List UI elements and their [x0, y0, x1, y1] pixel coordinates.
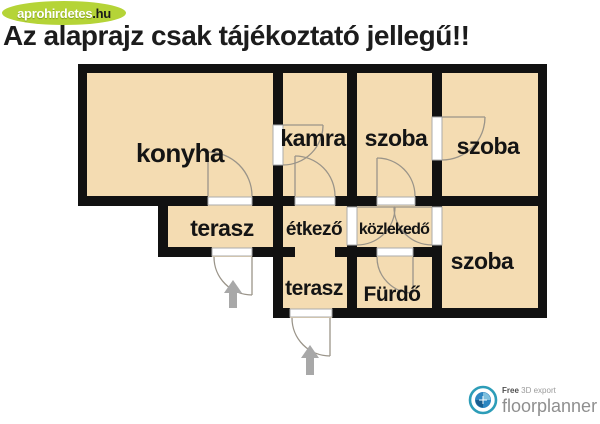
floorplanner-logo-text: Free 3D export floorplanner	[502, 383, 597, 417]
floorplanner-export-label: 3D export	[521, 386, 556, 395]
door-furdo	[377, 248, 413, 256]
entry-arrow-icon-1	[224, 280, 242, 308]
wall-left-outer	[78, 64, 87, 206]
page-title: Az alaprajz csak tájékoztató jellegű!!	[3, 20, 600, 52]
page: aprohirdetes.hu Az alaprajz csak tájékoz…	[0, 0, 600, 424]
room-label-konyha: konyha	[115, 140, 245, 166]
watermark-badge: aprohirdetes.hu	[2, 1, 126, 25]
wall-v5-a	[432, 64, 442, 117]
room-label-furdo: Fürdő	[327, 284, 457, 305]
door-terasz-exit	[212, 248, 252, 256]
door-szoba-middle	[377, 197, 415, 205]
floor-plan	[0, 0, 600, 424]
room-label-szoba-bottom: szoba	[417, 250, 547, 273]
room-label-szoba-top-right: szoba	[423, 135, 553, 158]
door-konyha-terasz	[208, 197, 252, 205]
wall-right-outer	[538, 64, 547, 318]
floorplanner-tagline: Free 3D export	[502, 386, 597, 395]
watermark-tld: .hu	[92, 6, 111, 21]
floorplanner-logo-icon	[468, 385, 498, 415]
watermark-brand: aprohirdetes	[17, 6, 92, 21]
room-label-kozlekedo: közlekedő	[329, 222, 459, 238]
wall-mid-1	[78, 196, 208, 206]
wall-top	[78, 64, 547, 73]
wall-v5-b	[432, 160, 442, 207]
wall-v3-a	[273, 64, 283, 125]
floorplanner-brand: floorplanner	[502, 396, 597, 417]
entry-arrow-icon-2	[301, 345, 319, 375]
door-terasz2-exit	[290, 309, 332, 317]
floorplanner-free-label: Free	[502, 386, 519, 395]
door-etkezo-kamra	[295, 197, 335, 205]
floorplanner-logo: Free 3D export floorplanner	[468, 383, 596, 417]
